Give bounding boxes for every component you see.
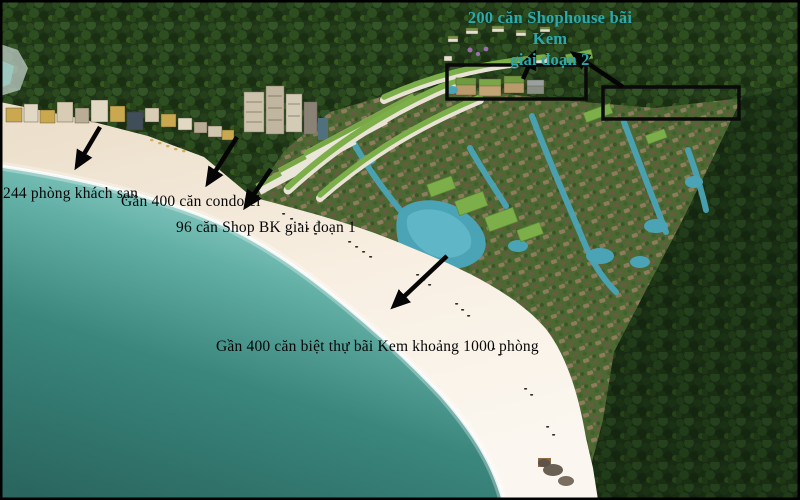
label-shophouse-phase2: 200 căn Shophouse bãi Kem giai đoạn 2 — [452, 7, 648, 70]
label-shophouse-line2: giai đoạn 2 — [452, 49, 648, 70]
label-shop-bk: 96 căn Shop BK giai đoạn 1 — [176, 219, 356, 236]
label-shophouse-line1: 200 căn Shophouse bãi Kem — [452, 7, 648, 49]
label-hotel: 244 phòng khách sạn — [3, 185, 138, 202]
label-villas: Gần 400 căn biệt thự bãi Kem khoảng 1000… — [216, 338, 539, 355]
scene-svg — [0, 0, 800, 500]
resort-aerial-image: 200 căn Shophouse bãi Kem giai đoạn 2 24… — [0, 0, 800, 500]
label-condotel: Gần 400 căn condotel — [121, 193, 261, 210]
